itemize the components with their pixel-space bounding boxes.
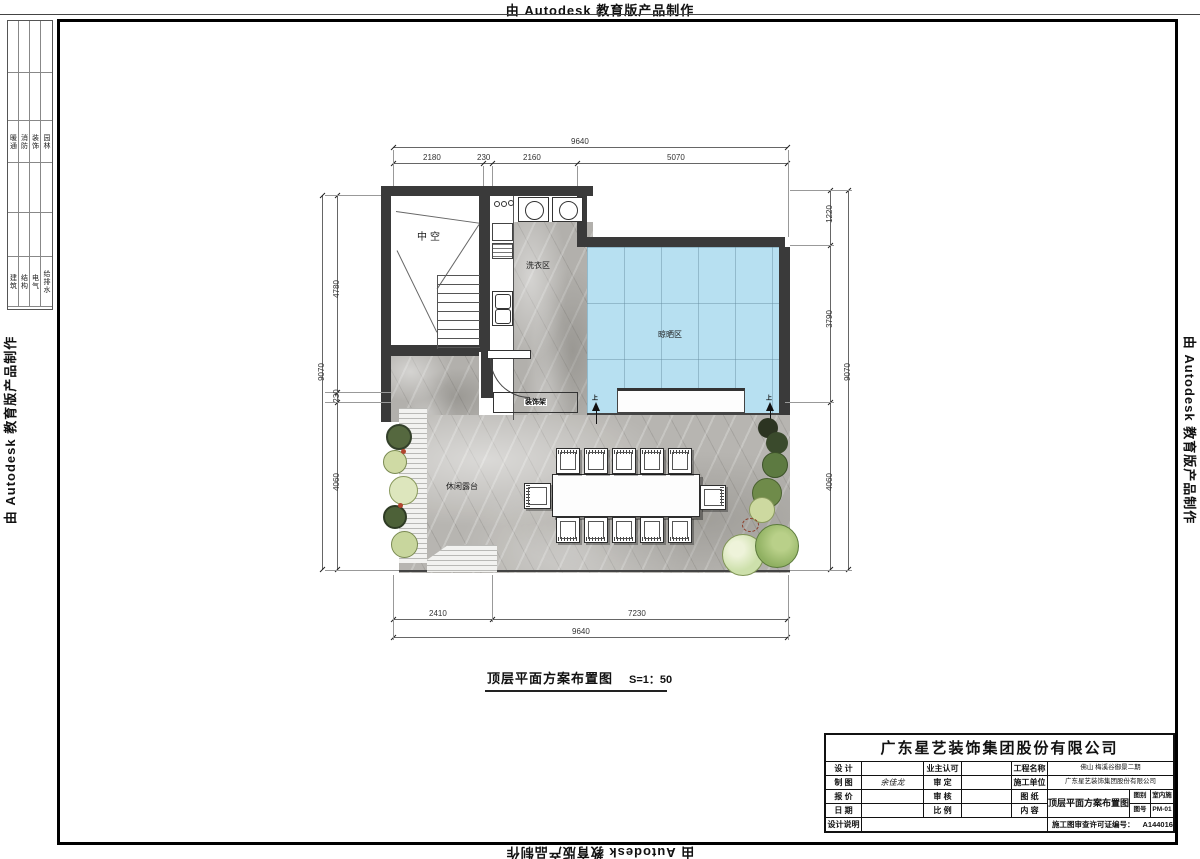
extension-line — [788, 150, 789, 237]
discipline-label: 建筑 — [10, 274, 17, 290]
discipline-label: 结构 — [21, 274, 28, 290]
chair — [668, 517, 692, 543]
chair — [524, 483, 551, 509]
value-drafting: 余佳龙 — [862, 776, 924, 790]
margin-cell — [19, 73, 30, 121]
extension-line — [492, 166, 493, 186]
extension-line — [785, 402, 834, 403]
dim-value: 7230 — [628, 610, 646, 618]
decor-shelf-label: 装饰架 — [524, 399, 547, 406]
drawing-title-text: 顶层平面方案布置图 — [487, 668, 613, 687]
label-permit: 施工图审查许可证编号： — [1052, 821, 1135, 829]
tree — [762, 452, 788, 478]
dryer-icon — [552, 197, 583, 222]
label-quote: 报 价 — [826, 790, 862, 804]
chair — [640, 448, 664, 474]
dim-line-bottom-overall — [393, 637, 788, 638]
washer-icon — [518, 197, 549, 222]
margin-cell: 电气 — [30, 257, 41, 307]
tree — [755, 524, 799, 568]
label-checked: 审 核 — [924, 790, 962, 804]
dim-value: 230 — [477, 154, 490, 162]
flower-accent — [398, 503, 403, 508]
value-design — [862, 762, 924, 776]
extension-line — [790, 190, 852, 191]
terrace-label: 休闲露台 — [446, 483, 478, 491]
extension-line — [483, 166, 484, 186]
label-category: 图别 — [1130, 790, 1151, 804]
margin-cell — [8, 213, 19, 257]
discipline-label: 装饰 — [32, 134, 39, 150]
drying-area-bottom-edge — [587, 413, 779, 415]
chair — [668, 448, 692, 474]
hob-burner-icon — [494, 201, 500, 207]
label-drawing: 图 纸 — [1012, 790, 1048, 804]
title-block: 广东星艺装饰集团股份有限公司 设 计 业主认可 工程名称 佛山 梅溪谷御景二期 … — [824, 733, 1175, 833]
margin-cell — [41, 21, 52, 73]
extension-line — [393, 150, 394, 186]
sink-icon — [492, 291, 513, 326]
label-notes: 设计说明 — [826, 818, 862, 831]
dim-value: 4060 — [826, 467, 834, 497]
extension-line — [325, 570, 399, 571]
margin-cell: 消防 — [19, 121, 30, 163]
drawing-title-underline — [485, 690, 667, 692]
dim-line-top-overall — [393, 147, 788, 148]
label-number: 图号 — [1130, 804, 1151, 818]
label-date: 日 期 — [826, 804, 862, 818]
hob-burner-icon — [508, 200, 514, 206]
drawing-sheet: 由 Autodesk 教育版产品制作 由 Autodesk 教育版产品制作 由 … — [0, 0, 1200, 859]
label-drafting: 制 图 — [826, 776, 862, 790]
margin-cell — [8, 163, 19, 213]
margin-cell — [19, 163, 30, 213]
label-design: 设 计 — [826, 762, 862, 776]
margin-cell — [19, 21, 30, 73]
margin-cell: 建筑 — [8, 257, 19, 307]
dim-value: 4060 — [333, 467, 341, 497]
dim-value: 9640 — [571, 138, 589, 146]
margin-cell: 园林 — [41, 121, 52, 163]
dim-value: 2160 — [523, 154, 541, 162]
stair-treads — [437, 275, 480, 349]
margin-cell — [19, 213, 30, 257]
autodesk-banner-bottom: 由 Autodesk 教育版产品制作 — [450, 844, 750, 859]
dim-value: 2180 — [423, 154, 441, 162]
chair — [556, 517, 580, 543]
extension-line — [788, 575, 789, 640]
laundry-label: 洗衣区 — [526, 262, 550, 270]
label-approved: 审 定 — [924, 776, 962, 790]
drying-area-label: 晾晒区 — [658, 331, 682, 339]
chair — [584, 517, 608, 543]
autodesk-banner-right: 由 Autodesk 教育版产品制作 — [1186, 330, 1200, 530]
shrub-accent — [742, 518, 759, 532]
value-drawing-content: 顶层平面方案布置图 — [1048, 790, 1130, 818]
value-category: 室内施 — [1151, 790, 1173, 804]
wall-left — [381, 186, 391, 422]
label-content: 内 容 — [1012, 804, 1048, 818]
up-arrow-icon — [766, 402, 774, 411]
chair — [640, 517, 664, 543]
value-contractor: 广东星艺装饰集团股份有限公司 — [1048, 776, 1173, 790]
extension-line — [492, 575, 493, 622]
value-scale — [962, 804, 1012, 818]
hob-burner-icon — [501, 201, 507, 207]
decor-shelf-strip: 装饰架 — [493, 392, 578, 413]
void-room-label: 中空 — [417, 233, 443, 243]
shelf-unit — [492, 243, 513, 259]
label-project-name: 工程名称 — [1012, 762, 1048, 776]
margin-cell: 给排水 — [41, 257, 52, 307]
margin-cell — [41, 73, 52, 121]
dim-line-bottom-segments — [393, 619, 788, 620]
wall-top — [381, 186, 593, 196]
margin-cell — [8, 21, 19, 73]
value-project-name: 佛山 梅溪谷御景二期 — [1048, 762, 1173, 776]
chair — [612, 517, 636, 543]
dim-value: 2410 — [429, 610, 447, 618]
margin-cell: 装饰 — [30, 121, 41, 163]
planter-bench — [617, 388, 745, 413]
discipline-label: 暖通 — [10, 134, 17, 150]
extension-line — [790, 245, 834, 246]
margin-cell — [30, 163, 41, 213]
chair — [700, 485, 726, 510]
dim-value: 3790 — [826, 304, 834, 334]
value-checked — [962, 790, 1012, 804]
discipline-label: 给排水 — [43, 270, 50, 294]
extension-line — [577, 166, 578, 186]
margin-discipline-table: 暖通 消防 装饰 园林 建筑 结构 电气 给排水 — [7, 20, 53, 310]
value-date — [862, 804, 924, 818]
autodesk-banner-top: 由 Autodesk 教育版产品制作 — [0, 0, 1200, 19]
value-approved — [962, 776, 1012, 790]
dim-value: 9070 — [318, 357, 326, 387]
margin-cell: 结构 — [19, 257, 30, 307]
dim-value: 9640 — [572, 628, 590, 636]
value-quote — [862, 790, 924, 804]
discipline-label: 消防 — [21, 134, 28, 150]
extension-line — [393, 575, 394, 640]
margin-cell — [41, 163, 52, 213]
flower-accent — [401, 449, 406, 454]
margin-cell — [30, 213, 41, 257]
label-scale: 比 例 — [924, 804, 962, 818]
up-marker: 上 — [592, 396, 600, 424]
value-owner-approval — [962, 762, 1012, 776]
wall-drying-top — [587, 237, 785, 247]
discipline-label: 园林 — [43, 134, 50, 150]
value-permit: A144016621(甲级) — [1143, 821, 1174, 829]
up-arrow-icon — [592, 402, 600, 411]
dim-value: 5070 — [667, 154, 685, 162]
tree — [383, 505, 407, 529]
tree — [386, 424, 412, 450]
value-number: PM-01 — [1151, 804, 1173, 818]
tree — [389, 476, 418, 505]
chair — [612, 448, 636, 474]
margin-cell — [8, 73, 19, 121]
margin-cell: 暖通 — [8, 121, 19, 163]
outdoor-table — [552, 474, 700, 517]
discipline-label: 电气 — [32, 274, 39, 290]
sheet-top-rule — [0, 14, 1200, 15]
wall-stair-right — [479, 196, 490, 352]
margin-cell — [30, 73, 41, 121]
extension-line — [325, 195, 381, 196]
permit-cell: 施工图审查许可证编号： A144016621(甲级) — [1048, 818, 1173, 831]
dim-line-top-segments — [393, 163, 788, 164]
label-contractor: 施工单位 — [1012, 776, 1048, 790]
company-name: 广东星艺装饰集团股份有限公司 — [826, 735, 1173, 762]
wall-drying-right — [779, 247, 790, 415]
chair — [556, 448, 580, 474]
extension-line — [790, 570, 852, 571]
dim-value: 4780 — [333, 274, 341, 304]
dim-value: 230 — [333, 381, 341, 411]
dim-value: 9070 — [844, 357, 852, 387]
margin-cell — [30, 21, 41, 73]
chair — [584, 448, 608, 474]
drawing-title: 顶层平面方案布置图 S=1：50 — [487, 668, 672, 687]
tree — [766, 432, 788, 454]
drawing-scale-text: S=1：50 — [629, 671, 672, 687]
up-arrow-stem — [596, 411, 597, 424]
value-notes — [862, 818, 1048, 831]
autodesk-banner-left: 由 Autodesk 教育版产品制作 — [0, 330, 14, 530]
margin-cell — [41, 213, 52, 257]
cabinet — [492, 223, 513, 241]
label-owner-approval: 业主认可 — [924, 762, 962, 776]
dim-line-right-segments — [830, 190, 831, 570]
tree — [391, 531, 418, 558]
dim-value: 1220 — [826, 199, 834, 229]
